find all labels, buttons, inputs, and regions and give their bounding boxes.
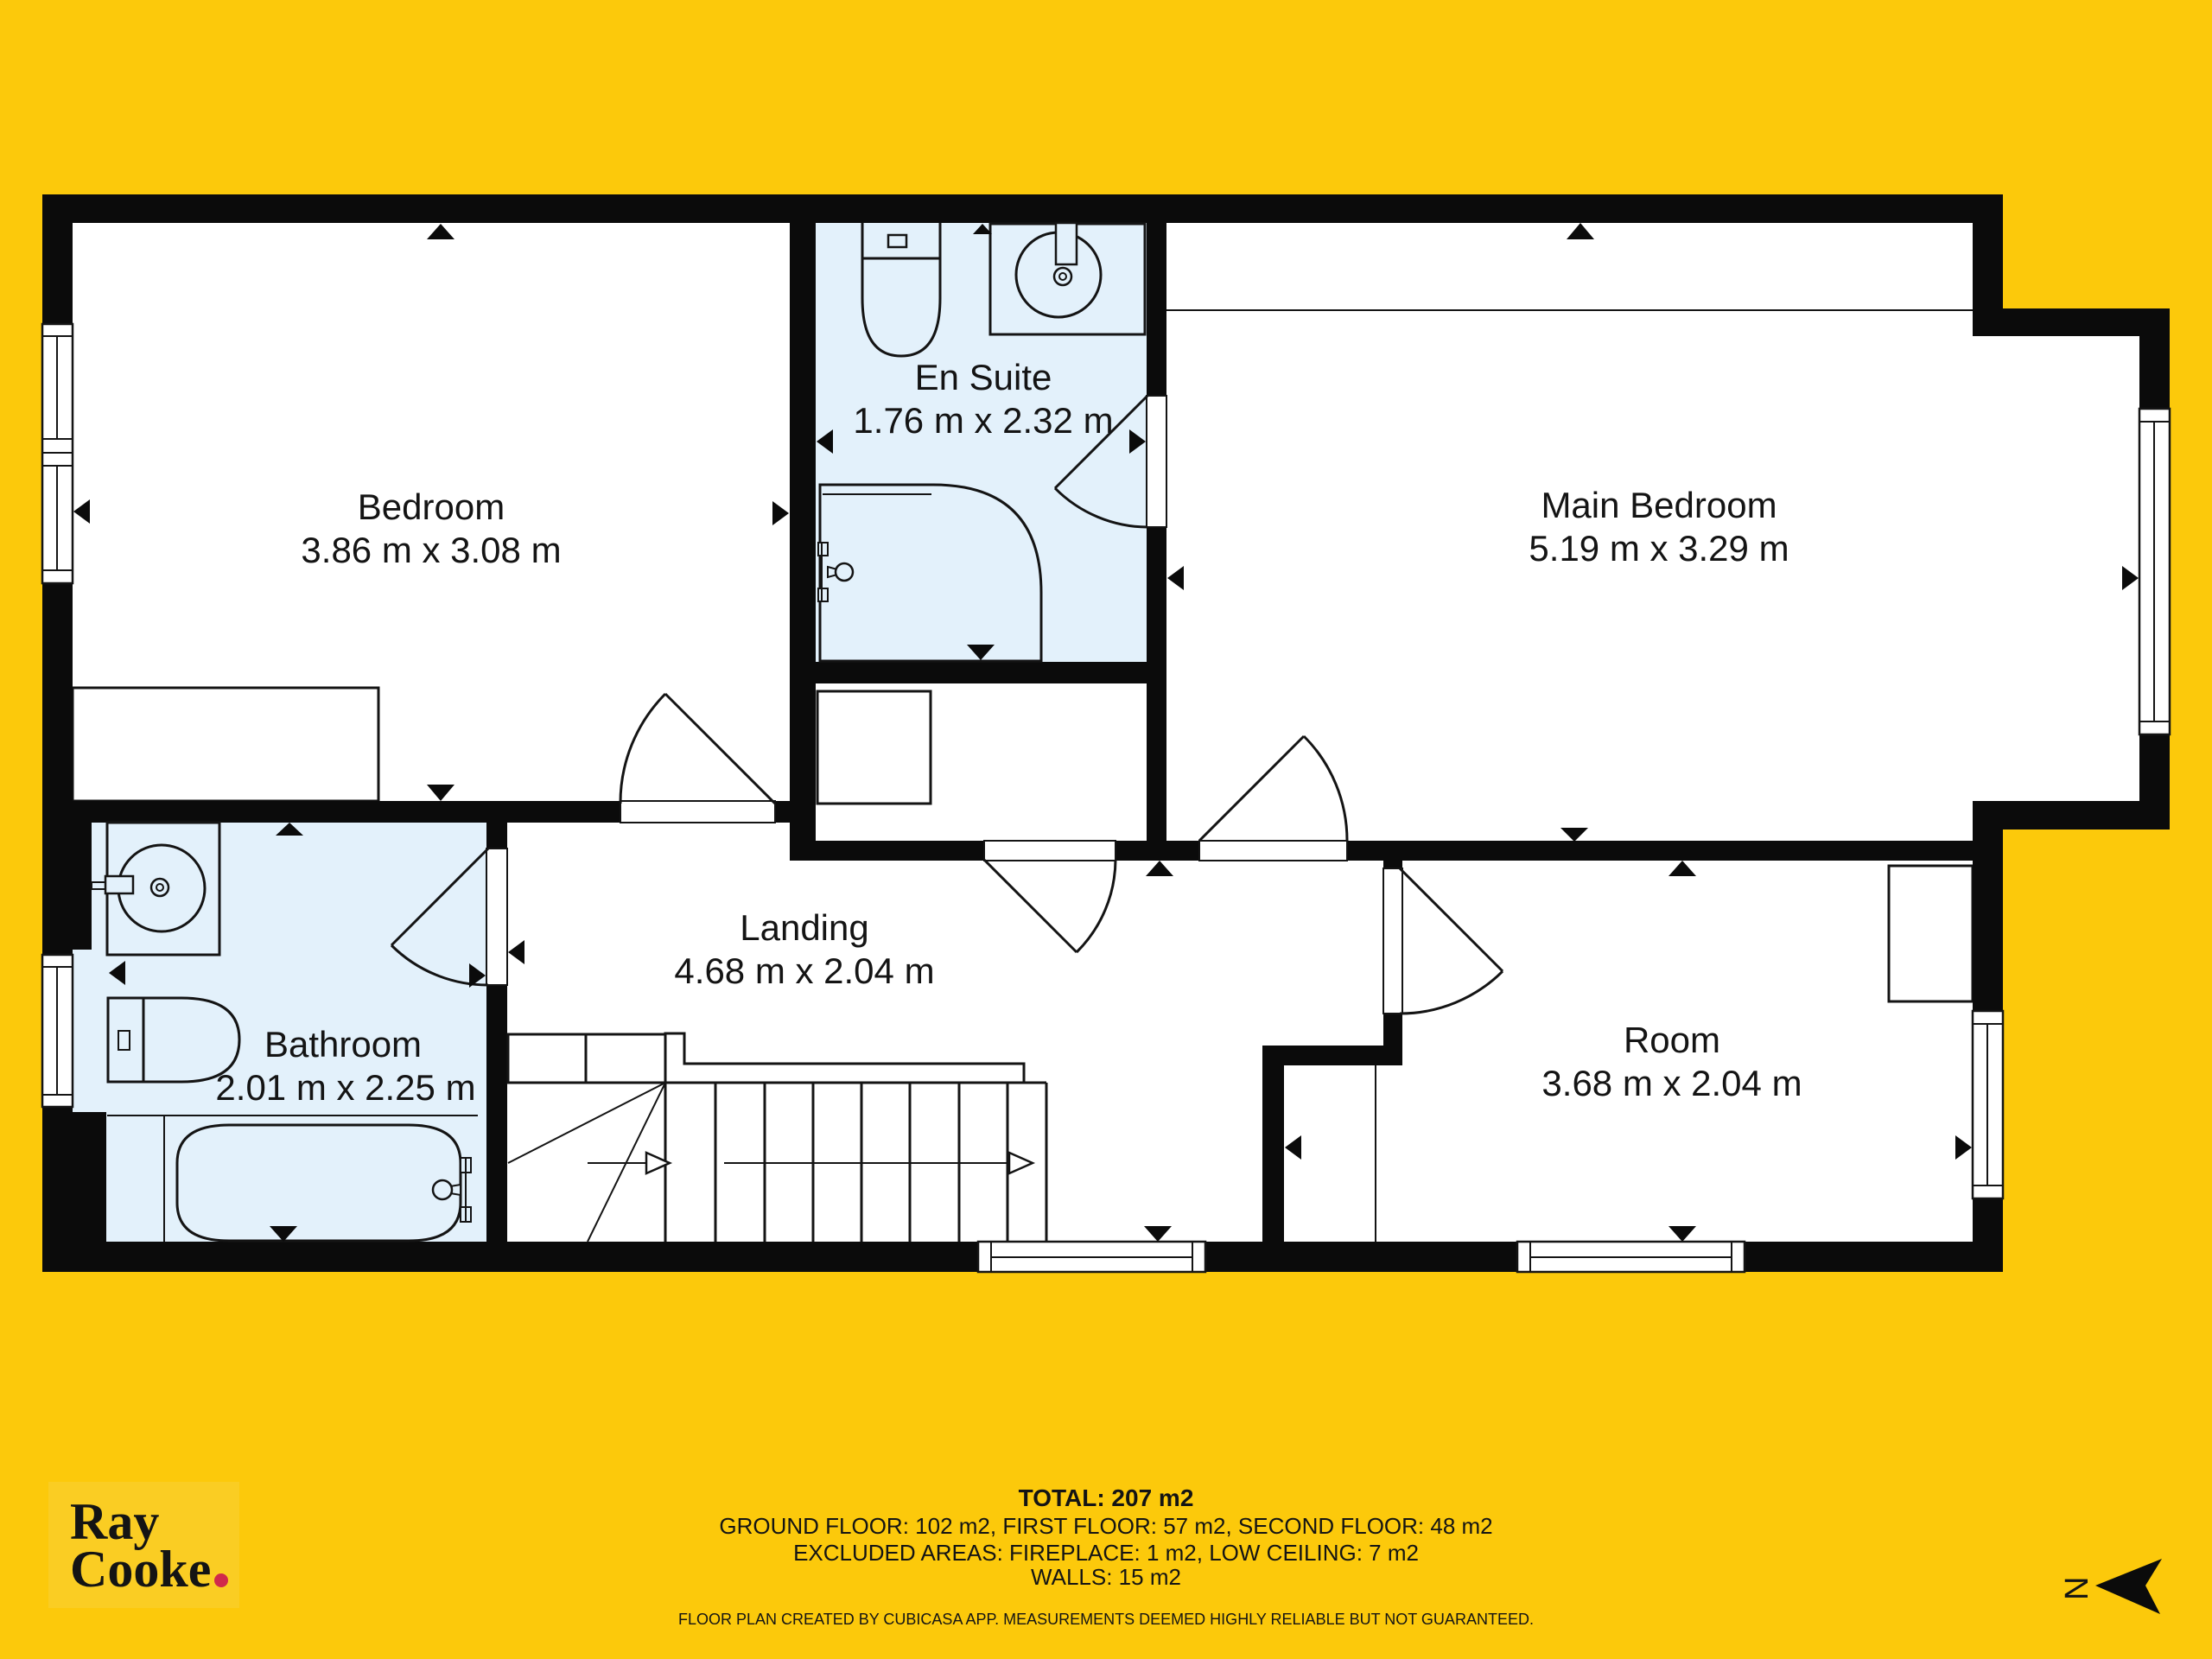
- svg-text:5.19 m x 3.29 m: 5.19 m x 3.29 m: [1529, 528, 1789, 569]
- svg-text:GROUND FLOOR: 102 m2, FIRST FL: GROUND FLOOR: 102 m2, FIRST FLOOR: 57 m2…: [719, 1513, 1492, 1539]
- svg-text:3.68 m x 2.04 m: 3.68 m x 2.04 m: [1541, 1063, 1802, 1103]
- svg-text:3.86 m x 3.08 m: 3.86 m x 3.08 m: [301, 530, 561, 570]
- svg-text:EXCLUDED AREAS: FIREPLACE: 1 m: EXCLUDED AREAS: FIREPLACE: 1 m2, LOW CEI…: [793, 1540, 1419, 1566]
- svg-text:Landing: Landing: [740, 907, 868, 948]
- svg-text:TOTAL: 207 m2: TOTAL: 207 m2: [1019, 1484, 1194, 1511]
- svg-text:FLOOR PLAN CREATED BY CUBICASA: FLOOR PLAN CREATED BY CUBICASA APP. MEAS…: [678, 1611, 1534, 1628]
- svg-text:En Suite: En Suite: [915, 357, 1052, 397]
- svg-text:Bedroom: Bedroom: [358, 486, 505, 527]
- svg-text:WALLS: 15 m2: WALLS: 15 m2: [1031, 1564, 1181, 1590]
- svg-text:N: N: [2059, 1577, 2095, 1600]
- svg-text:Bathroom: Bathroom: [264, 1024, 422, 1065]
- svg-text:Main Bedroom: Main Bedroom: [1541, 485, 1777, 525]
- svg-text:4.68 m x 2.04 m: 4.68 m x 2.04 m: [674, 950, 934, 991]
- svg-text:1.76 m x 2.32 m: 1.76 m x 2.32 m: [853, 400, 1113, 441]
- svg-text:Cooke: Cooke: [70, 1541, 211, 1598]
- svg-text:Room: Room: [1624, 1020, 1720, 1060]
- svg-text:2.01 m x 2.25 m: 2.01 m x 2.25 m: [215, 1067, 475, 1108]
